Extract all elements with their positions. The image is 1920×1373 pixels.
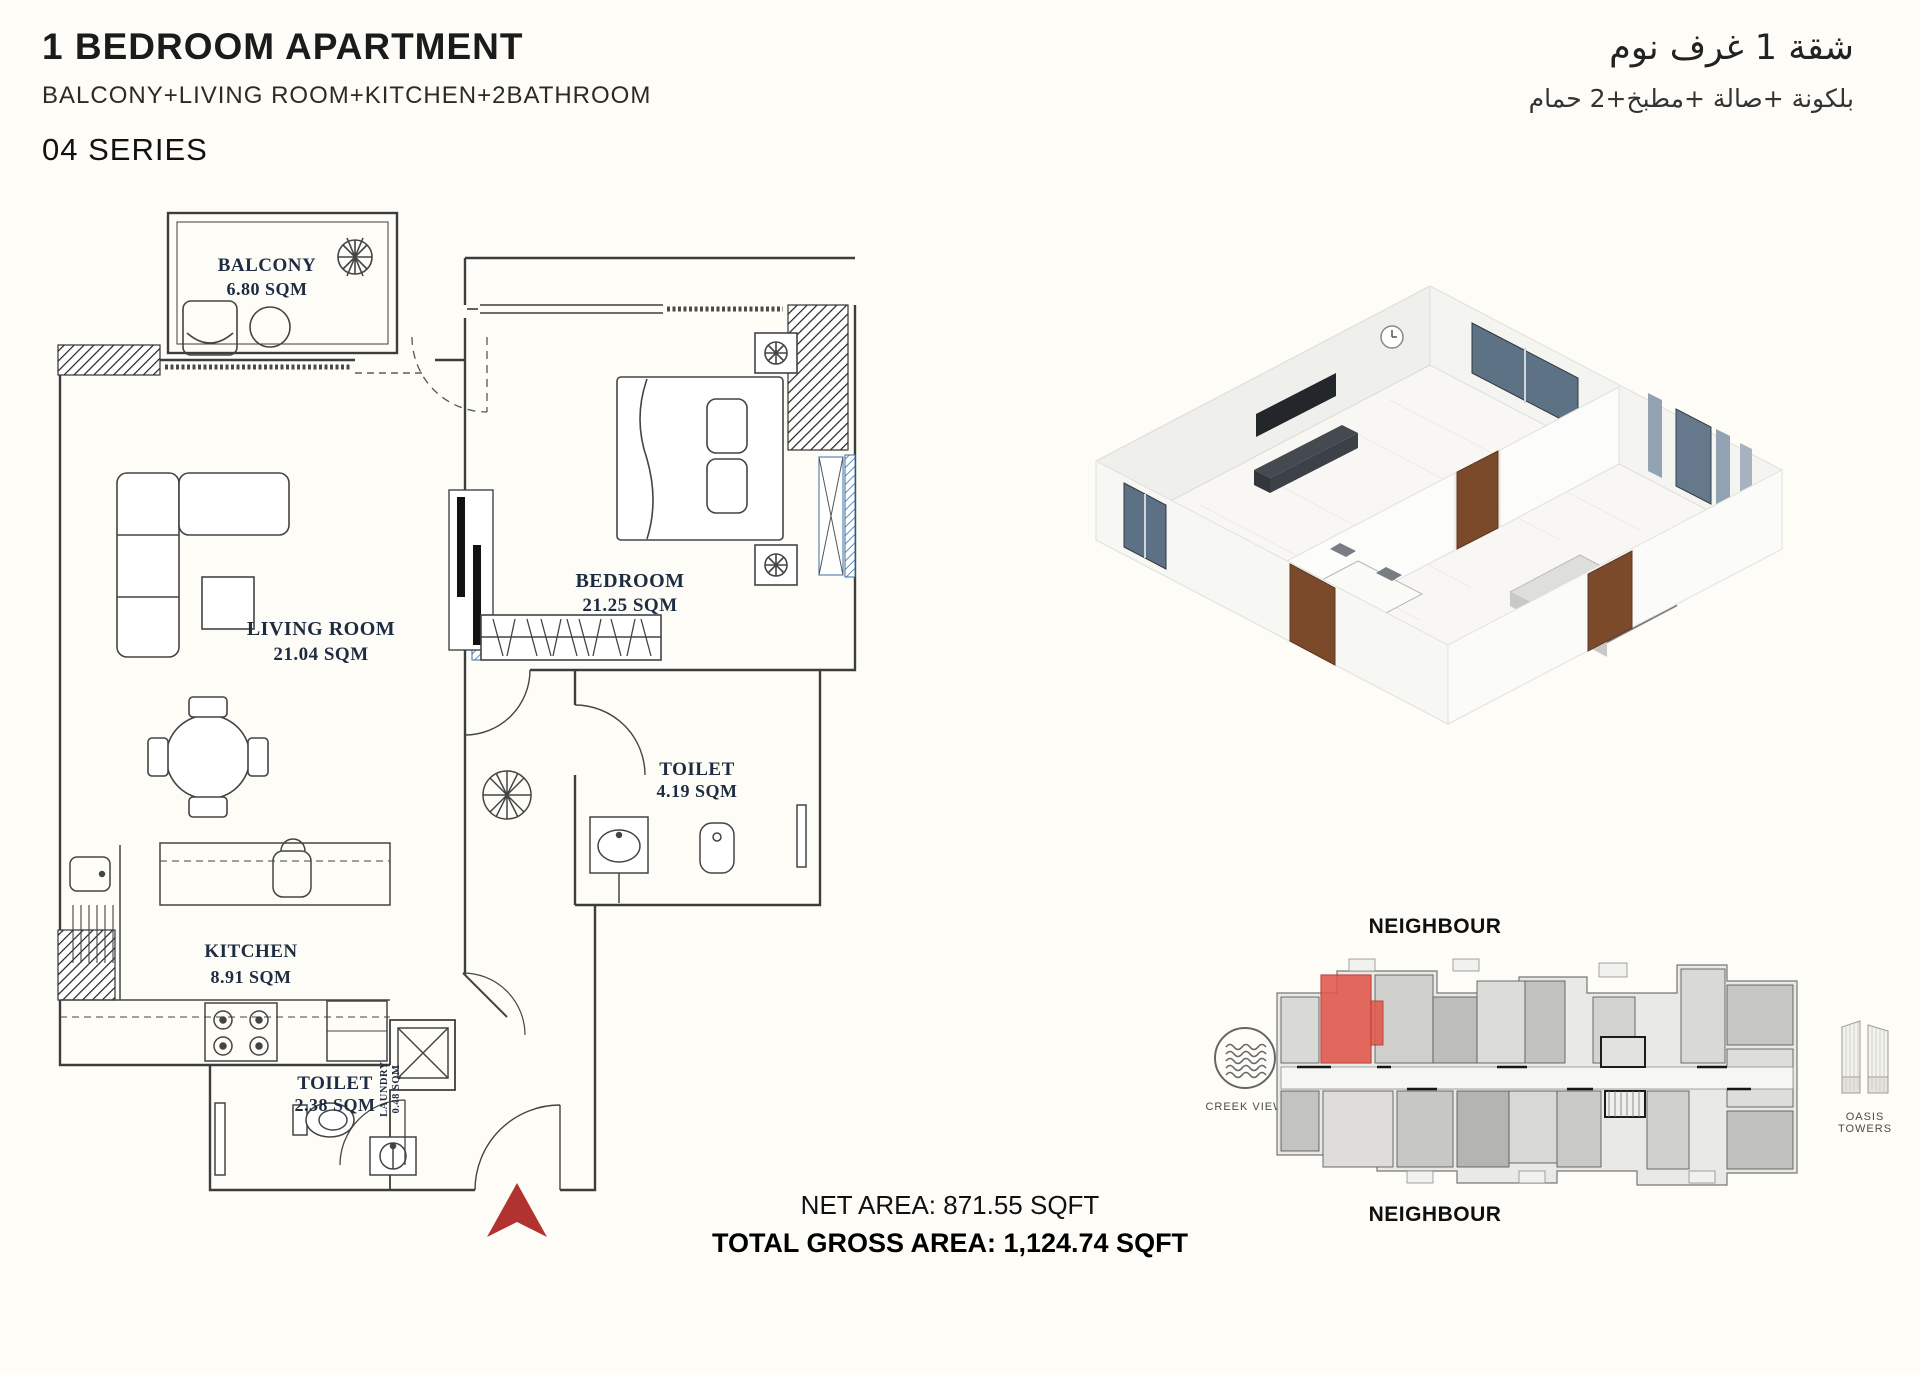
laundry-label: LAUNDRY [379,1061,390,1117]
wardrobe-icon [481,615,661,660]
hall-plant-icon [483,771,531,819]
balcony-table-icon [250,307,290,347]
render-3d-svg [1040,265,1840,880]
pillow-icon [707,399,747,453]
svg-text:21.04 SQM: 21.04 SQM [273,644,368,665]
svg-text:6.80 SQM: 6.80 SQM [226,279,307,299]
island-sink-icon [273,851,311,897]
plant-icon [338,238,372,276]
render-3d [1040,265,1840,880]
svg-text:4.19 SQM: 4.19 SQM [656,781,737,801]
svg-text:8.91 SQM: 8.91 SQM [210,967,291,987]
bedroom-door-arc [465,670,530,735]
svg-text:21.25 SQM: 21.25 SQM [582,595,677,616]
page-subtitle-arabic: بلكونة +صالة +مطبخ+2 حمام [1529,84,1854,113]
toilet1-label: TOILET [659,759,735,780]
plan-walls [60,213,855,1190]
svg-text:2.38 SQM: 2.38 SQM [294,1095,375,1115]
balcony-door-arc [412,337,487,412]
page-subtitle: BALCONY+LIVING ROOM+KITCHEN+2BATHROOM [42,82,651,110]
toilet1-fixtures [590,805,806,903]
neighbour-top-label: NEIGHBOUR [1285,915,1585,939]
page-title-arabic: شقة 1 غرف نوم [1529,28,1854,68]
pillow-icon [707,459,747,513]
header-right-arabic: شقة 1 غرف نوم بلكونة +صالة +مطبخ+2 حمام [1529,28,1854,113]
header-left: 1 BEDROOM APARTMENT BALCONY+LIVING ROOM+… [42,26,651,168]
net-area-text: NET AREA: 871.55 SQFT [600,1190,1300,1221]
oasis-towers-icon [1834,1015,1896,1101]
area-totals: NET AREA: 871.55 SQFT TOTAL GROSS AREA: … [600,1190,1300,1259]
floor-plan-2d: BALCONY 6.80 SQM LIVING ROOM 21.04 SQM B… [55,205,905,1250]
bedroom-label: BEDROOM [575,570,684,592]
clock-3d [1381,326,1403,348]
gross-area-text: TOTAL GROSS AREA: 1,124.74 SQFT [600,1228,1300,1259]
bidet-icon [700,823,734,873]
brochure-page: { "header": { "title": "1 BEDROOM APARTM… [0,0,1920,1373]
entry-door-arc [475,1105,560,1190]
oasis-towers-label: OASIS TOWERS [1820,1111,1910,1135]
shower-panel-icon [215,1103,225,1175]
page-title: 1 BEDROOM APARTMENT [42,26,651,68]
dining-table-icon [166,715,250,799]
towel-rail-icon [797,805,806,867]
toilet2-label: TOILET [297,1073,373,1094]
floor-plan-svg: BALCONY 6.80 SQM LIVING ROOM 21.04 SQM B… [55,205,905,1250]
kitchen-label: KITCHEN [204,941,297,962]
living-room-furniture [117,473,289,817]
sofa-icon [117,473,179,657]
balcony-label: BALCONY [218,255,317,276]
neighbour-bottom-label: NEIGHBOUR [1285,1203,1585,1227]
building-plate-svg [1257,941,1817,1199]
key-plate: NEIGHBOUR NEIGHBOUR CREEK VIEW [1195,915,1910,1245]
living-room-label: LIVING ROOM [247,618,395,640]
series-label: 04 SERIES [42,132,651,168]
toilet1-door-arc [575,705,645,775]
plate-corridor [1281,1067,1793,1089]
oasis-towers-marker: OASIS TOWERS [1820,1015,1910,1135]
svg-text:0.48 SQM: 0.48 SQM [391,1065,402,1114]
entrance-arrow-icon [487,1183,547,1237]
balcony-chair-icon [183,301,237,355]
laundry-closet [398,973,525,1078]
